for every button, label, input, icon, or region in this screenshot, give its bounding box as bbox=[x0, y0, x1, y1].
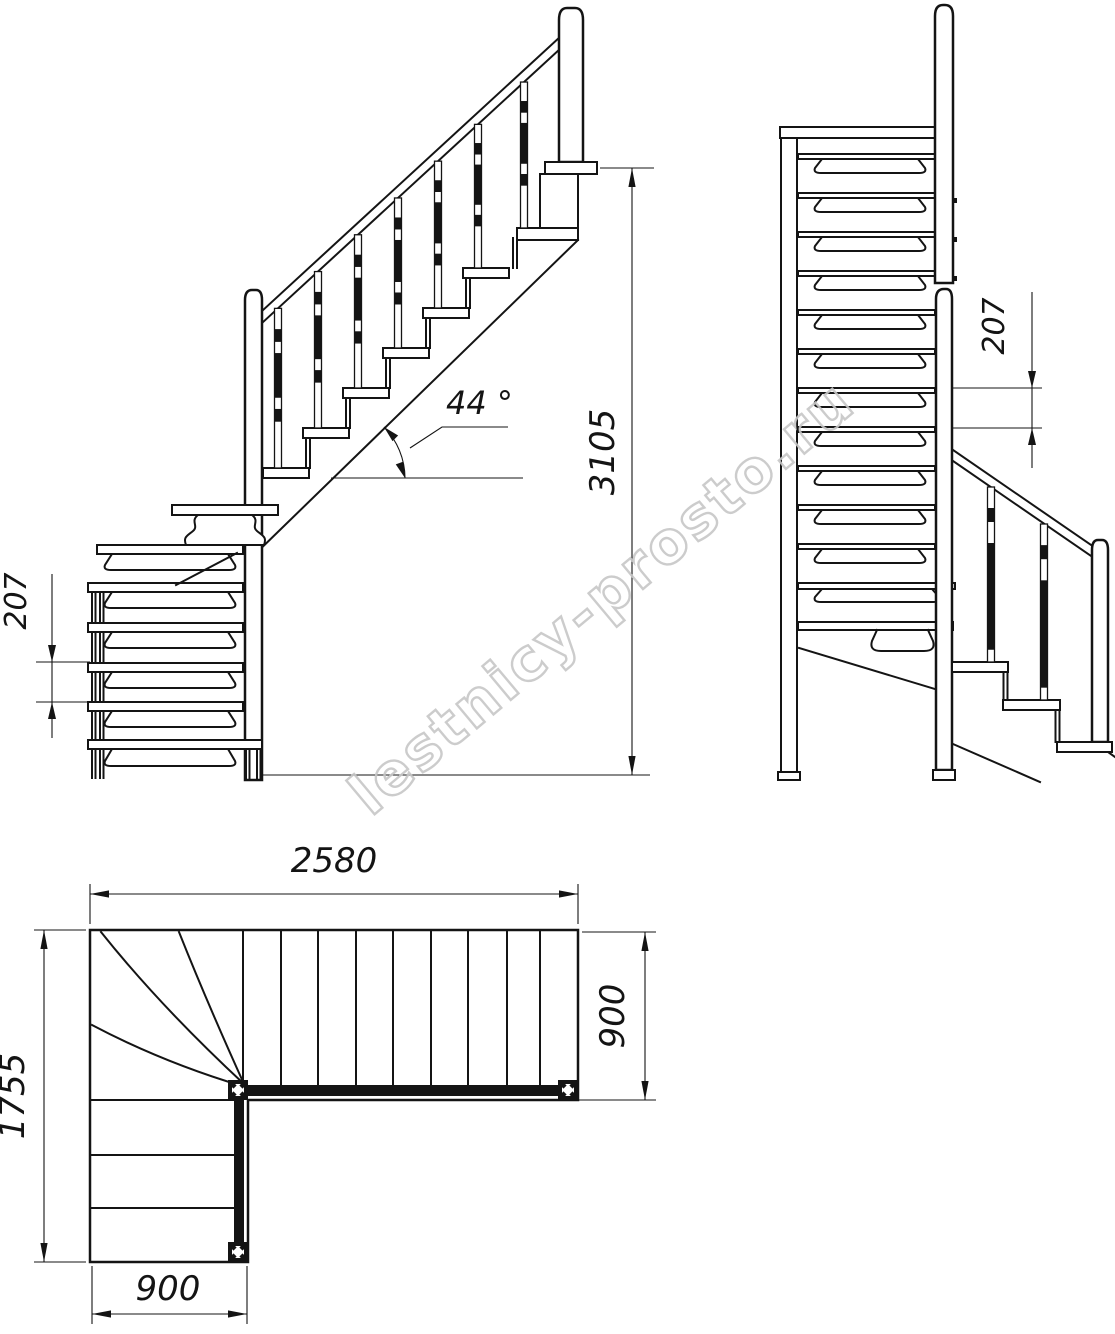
step-tread bbox=[263, 468, 309, 478]
baluster-detail bbox=[355, 278, 362, 321]
baluster-detail bbox=[395, 240, 402, 282]
step-tread bbox=[423, 308, 469, 318]
tread-profile bbox=[815, 393, 926, 407]
angle-arrow-icon bbox=[396, 462, 409, 480]
step-tread bbox=[1057, 742, 1112, 752]
stack-tread bbox=[798, 583, 955, 589]
side-elevation-view: 207 bbox=[778, 5, 1115, 782]
baluster-detail bbox=[355, 255, 362, 267]
winder-tread-stack bbox=[88, 545, 262, 778]
depth-dimension: 1755 bbox=[0, 930, 86, 1262]
handrail-top-line bbox=[953, 450, 1094, 547]
stack-tread bbox=[88, 702, 243, 711]
riser-dimension-left: 207 bbox=[0, 572, 90, 738]
tread-tick-icon bbox=[953, 198, 957, 203]
flight-edge-beam bbox=[234, 1100, 244, 1242]
bottom-winder-profile bbox=[871, 630, 933, 651]
riser-dimension-right: 207 bbox=[953, 292, 1042, 468]
plan-post-symbol bbox=[228, 1080, 248, 1100]
stack-tread bbox=[798, 544, 935, 549]
tread-tick-icon bbox=[953, 237, 957, 242]
dim-arrow-icon bbox=[48, 645, 56, 662]
baluster-detail bbox=[435, 202, 442, 243]
plan-post-symbol bbox=[558, 1080, 578, 1100]
top-newel-post bbox=[559, 8, 583, 162]
tread-profile bbox=[815, 315, 926, 329]
stack-tread bbox=[798, 427, 935, 432]
tread-profile bbox=[815, 276, 926, 290]
tread-profile bbox=[105, 632, 236, 648]
tread-profile bbox=[105, 592, 236, 608]
handrail-bottom-line bbox=[262, 48, 561, 323]
baluster-detail bbox=[1041, 545, 1048, 559]
top-landing-tread bbox=[545, 162, 597, 174]
drawing-canvas: 44 ° 207 3105 bbox=[0, 0, 1115, 1334]
step-tread bbox=[383, 348, 429, 358]
left-leg-foot bbox=[778, 772, 800, 780]
plan-post-symbol bbox=[228, 1242, 248, 1262]
length-dim-value: 2580 bbox=[291, 841, 378, 881]
landing-step bbox=[517, 228, 578, 240]
tread-profile bbox=[105, 711, 236, 727]
tread-profile bbox=[815, 237, 926, 251]
flight-edge-beam bbox=[248, 1085, 558, 1096]
plan-tread-lines bbox=[90, 930, 540, 1208]
under-stair-line bbox=[799, 648, 935, 689]
tread-profile bbox=[815, 471, 926, 485]
length-dimension: 2580 bbox=[90, 841, 578, 924]
step-tread bbox=[1003, 700, 1060, 710]
top-rail-bar bbox=[780, 127, 936, 138]
step-tread bbox=[463, 268, 509, 278]
winder-tread-bar bbox=[172, 505, 278, 515]
winder-fan-line bbox=[92, 1025, 242, 1086]
tread-profile bbox=[815, 159, 926, 173]
baluster-detail bbox=[395, 292, 402, 304]
stack-tread bbox=[88, 663, 243, 672]
step-tread bbox=[343, 388, 389, 398]
upper-newel-post bbox=[935, 5, 953, 283]
end-newel-post bbox=[1092, 540, 1108, 742]
under-stair-line bbox=[953, 744, 1040, 782]
baluster-detail bbox=[355, 331, 362, 343]
stack-tread bbox=[798, 622, 953, 630]
winder-tread-profile bbox=[185, 515, 265, 545]
baluster-detail bbox=[475, 143, 482, 154]
left-leg-post bbox=[781, 138, 797, 772]
baluster-detail bbox=[988, 543, 995, 650]
riser-dim-value: 207 bbox=[977, 297, 1012, 354]
baluster-detail bbox=[521, 101, 528, 113]
baluster-detail bbox=[275, 329, 282, 342]
landing-fascia bbox=[540, 174, 578, 228]
baluster-detail bbox=[988, 508, 995, 522]
baluster-detail bbox=[475, 215, 482, 226]
stack-tread bbox=[798, 349, 935, 354]
handrail-bottom-line bbox=[953, 461, 1094, 558]
dim-arrow-icon bbox=[48, 702, 56, 719]
staircase-drawing: 44 ° 207 3105 bbox=[0, 0, 1115, 1334]
baluster-detail bbox=[395, 217, 402, 229]
stack-tread bbox=[88, 740, 262, 749]
stack-tread bbox=[798, 154, 935, 159]
bottom-flight-width-dimension: 900 bbox=[92, 1266, 247, 1324]
dim-arrow-icon bbox=[1028, 428, 1036, 445]
height-dim-value: 3105 bbox=[583, 409, 623, 496]
handrail-top-line bbox=[262, 36, 561, 311]
tread-profile bbox=[815, 549, 926, 563]
tread-profile bbox=[105, 672, 236, 688]
stack-tread bbox=[798, 232, 935, 237]
width-dim-value: 900 bbox=[136, 1269, 201, 1309]
tread-profile bbox=[105, 554, 236, 570]
baluster-detail bbox=[315, 292, 322, 305]
baluster-detail bbox=[521, 123, 528, 164]
side-tread-stack bbox=[798, 154, 955, 630]
baluster-detail bbox=[275, 409, 282, 422]
stack-tread bbox=[798, 466, 935, 471]
plan-newel-posts bbox=[228, 1080, 578, 1262]
tread-profile bbox=[105, 749, 236, 766]
tread-profile bbox=[815, 510, 926, 524]
stack-tread bbox=[97, 545, 243, 554]
angle-value: 44 ° bbox=[446, 384, 513, 422]
angle-leader-line bbox=[410, 427, 508, 448]
baluster-detail bbox=[521, 174, 528, 186]
tread-profile bbox=[815, 432, 926, 446]
baluster-detail bbox=[435, 254, 442, 266]
stack-tread bbox=[798, 271, 935, 276]
top-flight-width-dimension: 900 bbox=[578, 932, 656, 1100]
stack-tread bbox=[798, 505, 935, 510]
stack-tread bbox=[798, 193, 935, 198]
stack-tread bbox=[88, 623, 243, 632]
angle-arrow-icon bbox=[381, 424, 398, 441]
tread-tick-icon bbox=[953, 276, 957, 281]
depth-dim-value: 1755 bbox=[0, 1053, 33, 1140]
baluster-detail bbox=[275, 353, 282, 398]
step-tread bbox=[303, 428, 349, 438]
height-dimension: 3105 bbox=[583, 168, 654, 775]
lower-newel-post bbox=[936, 289, 952, 770]
winder-fan-line bbox=[179, 932, 244, 1084]
baluster-detail bbox=[435, 180, 442, 192]
riser-dim-value: 207 bbox=[0, 572, 34, 629]
stack-tread bbox=[798, 388, 935, 393]
baluster-detail bbox=[315, 370, 322, 383]
baluster-detail bbox=[315, 315, 322, 359]
tread-profile bbox=[815, 198, 926, 212]
plan-view: 2580 900 1755 900 bbox=[0, 841, 656, 1324]
step-tread bbox=[952, 662, 1008, 672]
newel-foot bbox=[933, 770, 955, 780]
stack-tread bbox=[88, 583, 243, 592]
baluster-detail bbox=[475, 165, 482, 205]
tread-profile bbox=[815, 354, 926, 368]
front-elevation-view: 44 ° 207 3105 bbox=[0, 8, 654, 780]
tread-profile bbox=[815, 589, 940, 602]
stack-tread bbox=[798, 310, 935, 315]
width-dim-value: 900 bbox=[593, 984, 633, 1049]
stringer-line bbox=[247, 240, 578, 562]
dim-arrow-icon bbox=[1028, 371, 1036, 388]
baluster-detail bbox=[1041, 580, 1048, 687]
